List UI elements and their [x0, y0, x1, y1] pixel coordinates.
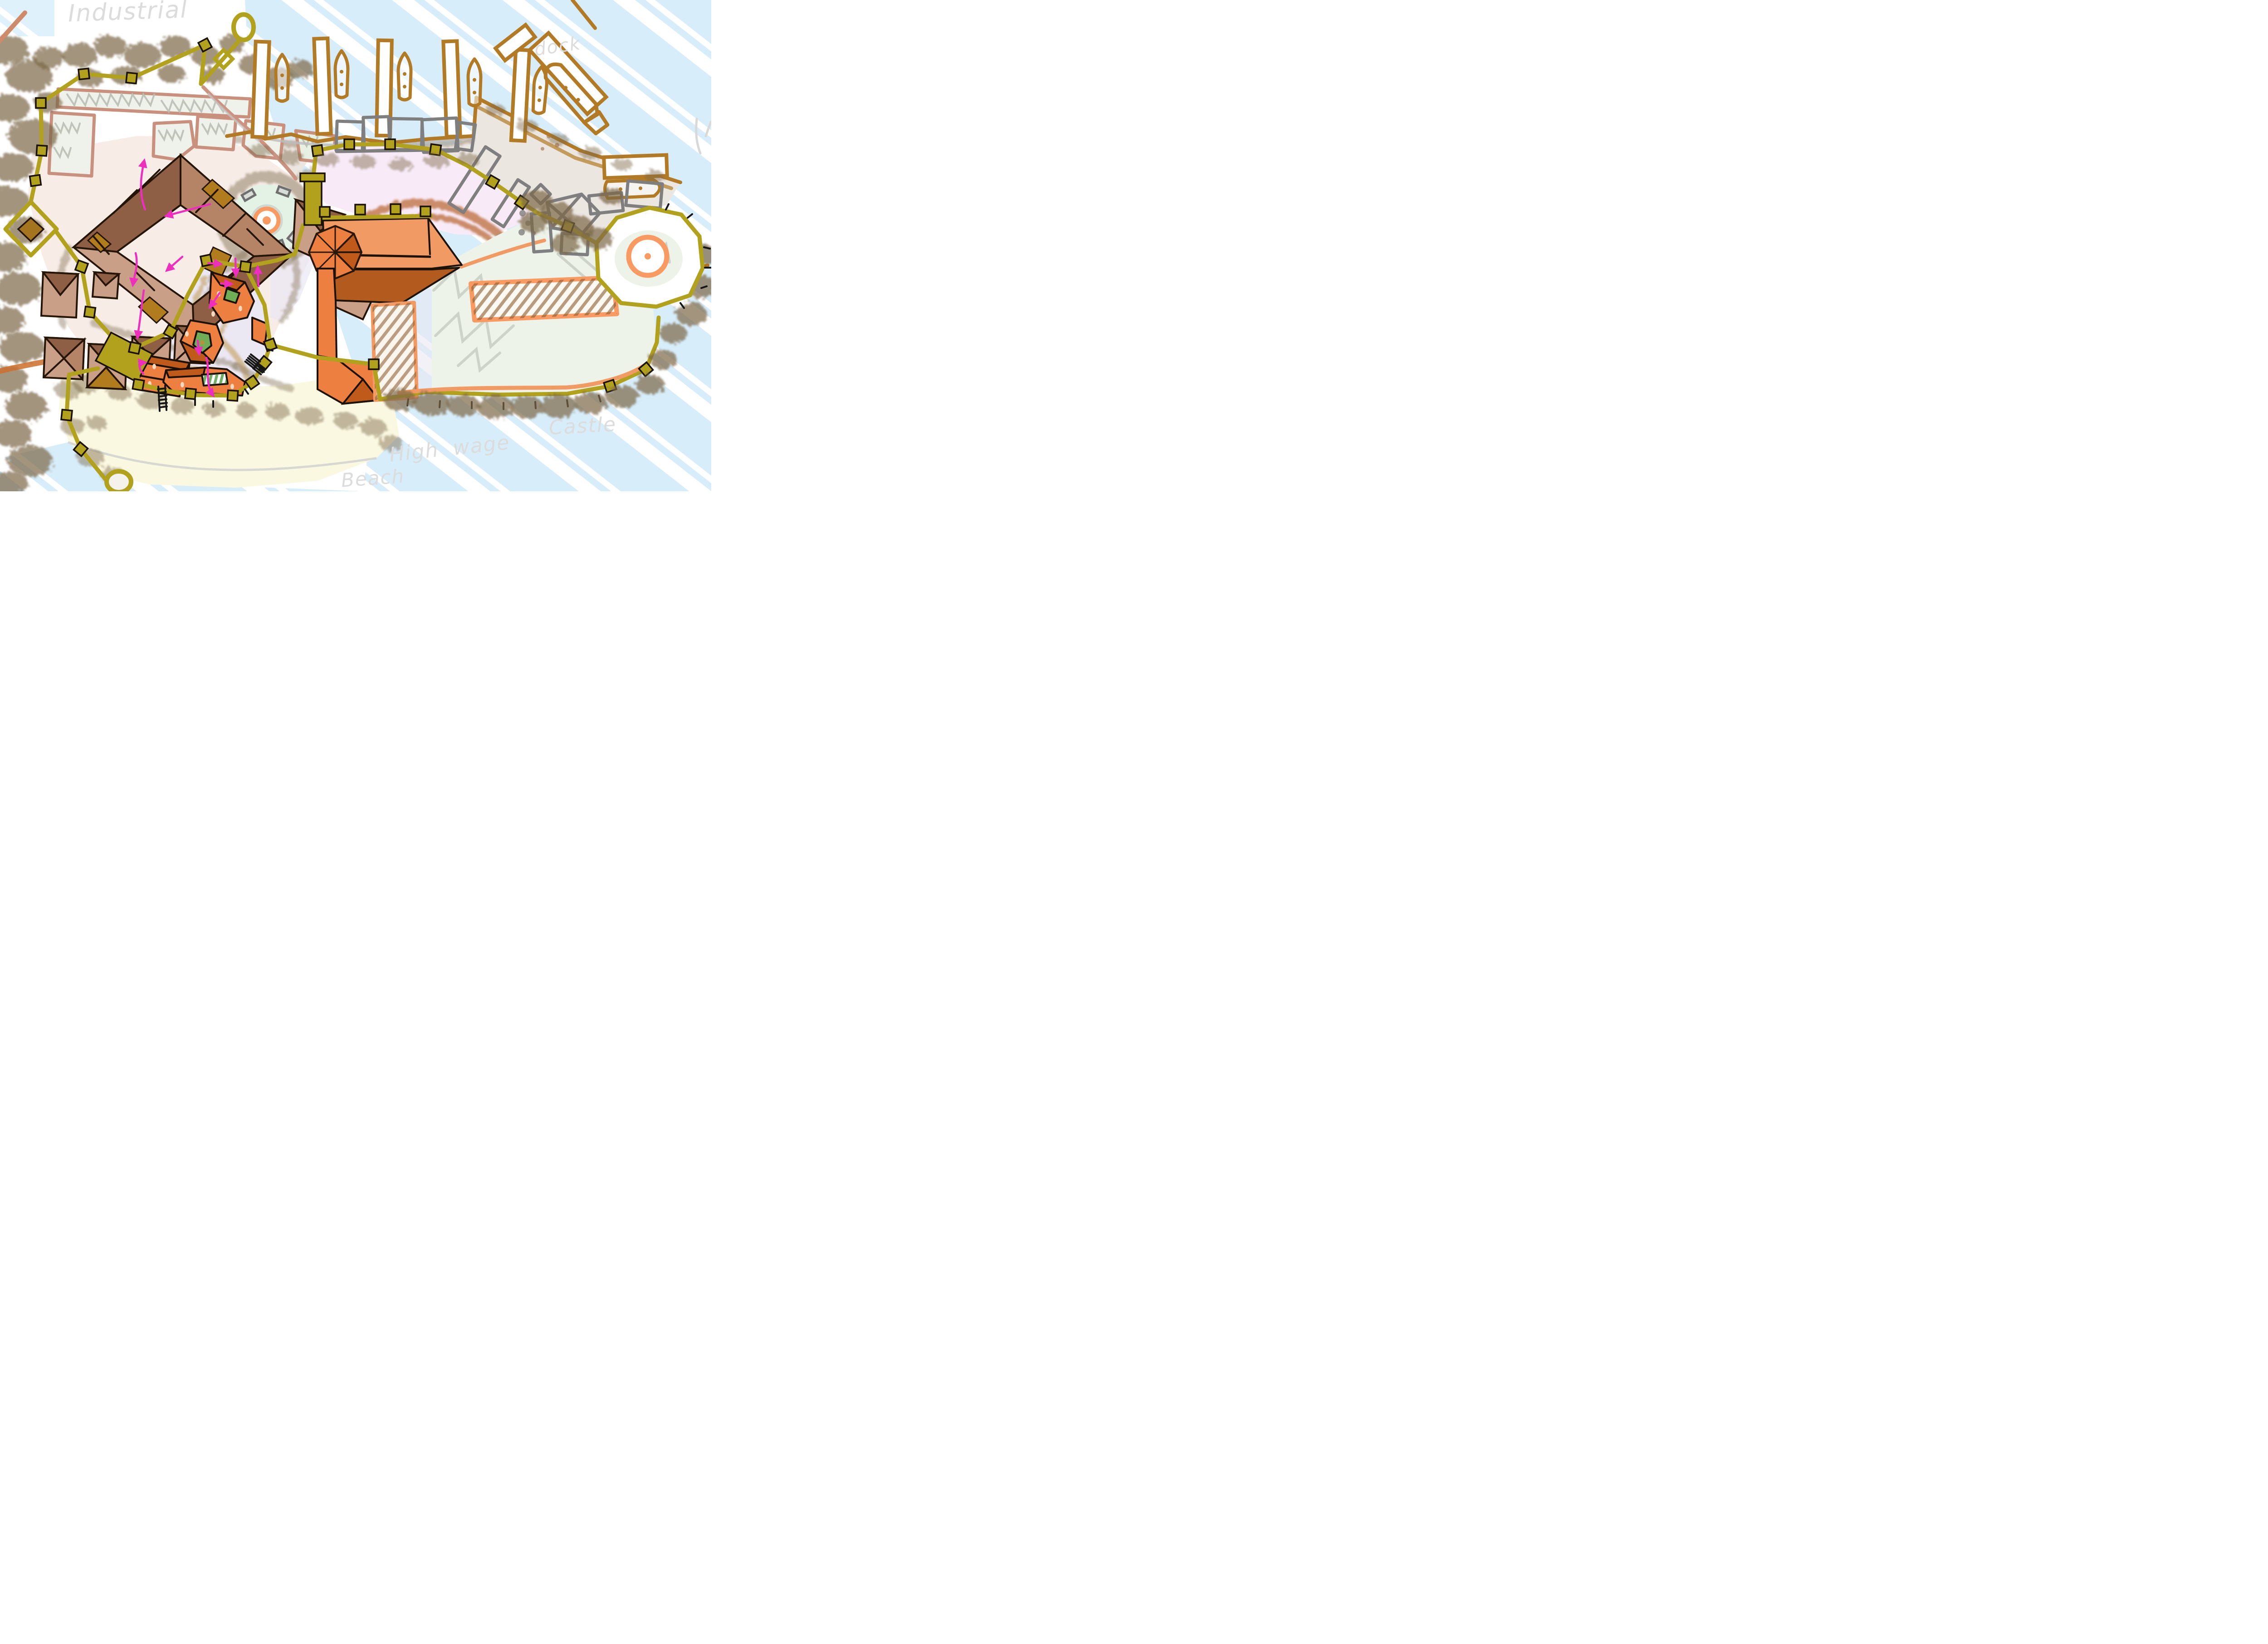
- map-drawing: Industrial dock Castle High wage Beach: [0, 0, 711, 491]
- house: [41, 272, 78, 318]
- label-castle: Castle: [548, 413, 617, 440]
- label-industrial: Industrial: [68, 0, 188, 27]
- sketch-map-canvas: Industrial dock Castle High wage Beach: [0, 0, 711, 491]
- label-beach: Beach: [340, 465, 405, 491]
- beach-bastion: [107, 471, 131, 491]
- house: [93, 272, 119, 298]
- castle-gate-tower: [304, 180, 322, 225]
